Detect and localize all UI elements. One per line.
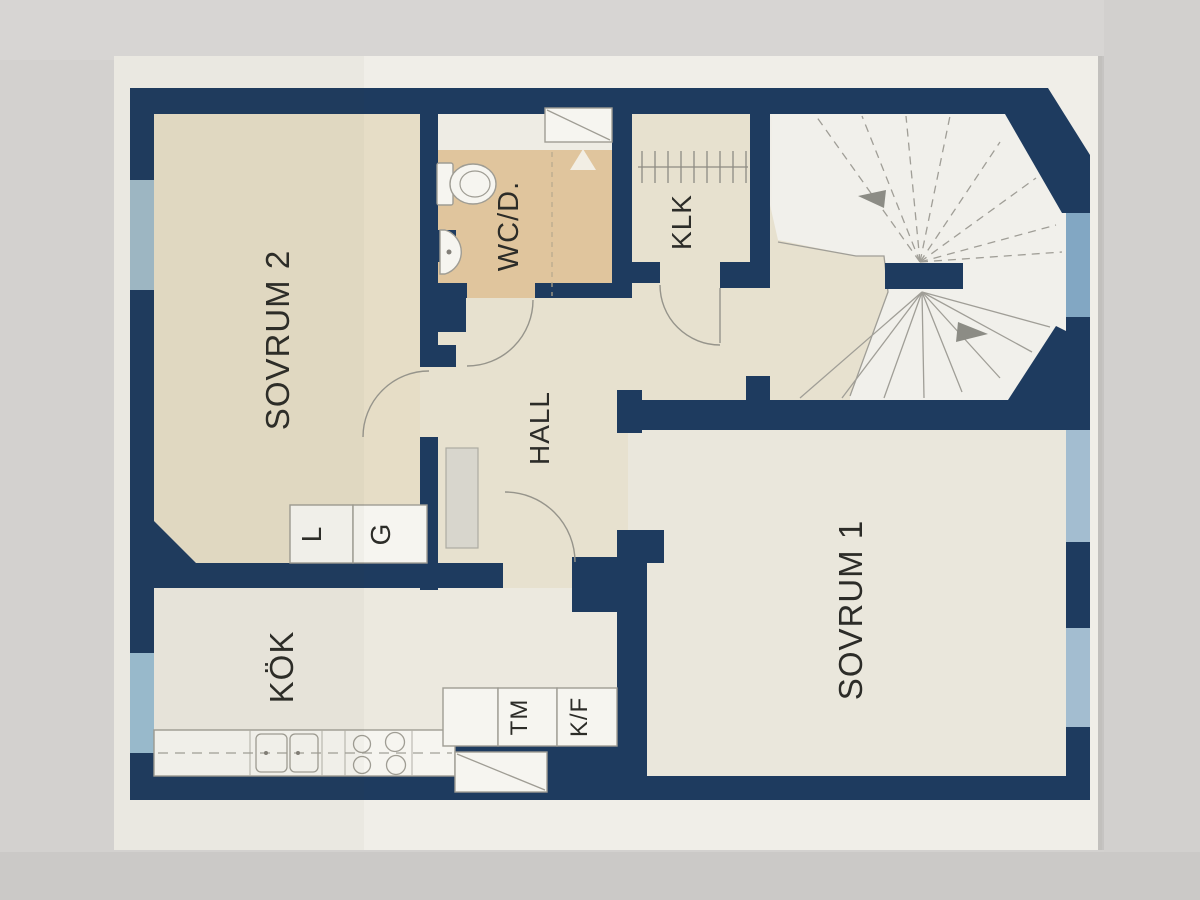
photo-edge-top bbox=[0, 0, 1200, 60]
photo-edge-bottom bbox=[0, 852, 1200, 900]
photo-edge-right bbox=[1104, 0, 1200, 900]
floor-plan-photo: SOVRUM 2 WC/D. KLK HALL SOVRUM 1 KÖK L G… bbox=[0, 0, 1200, 900]
photo-left-shading bbox=[114, 56, 364, 850]
